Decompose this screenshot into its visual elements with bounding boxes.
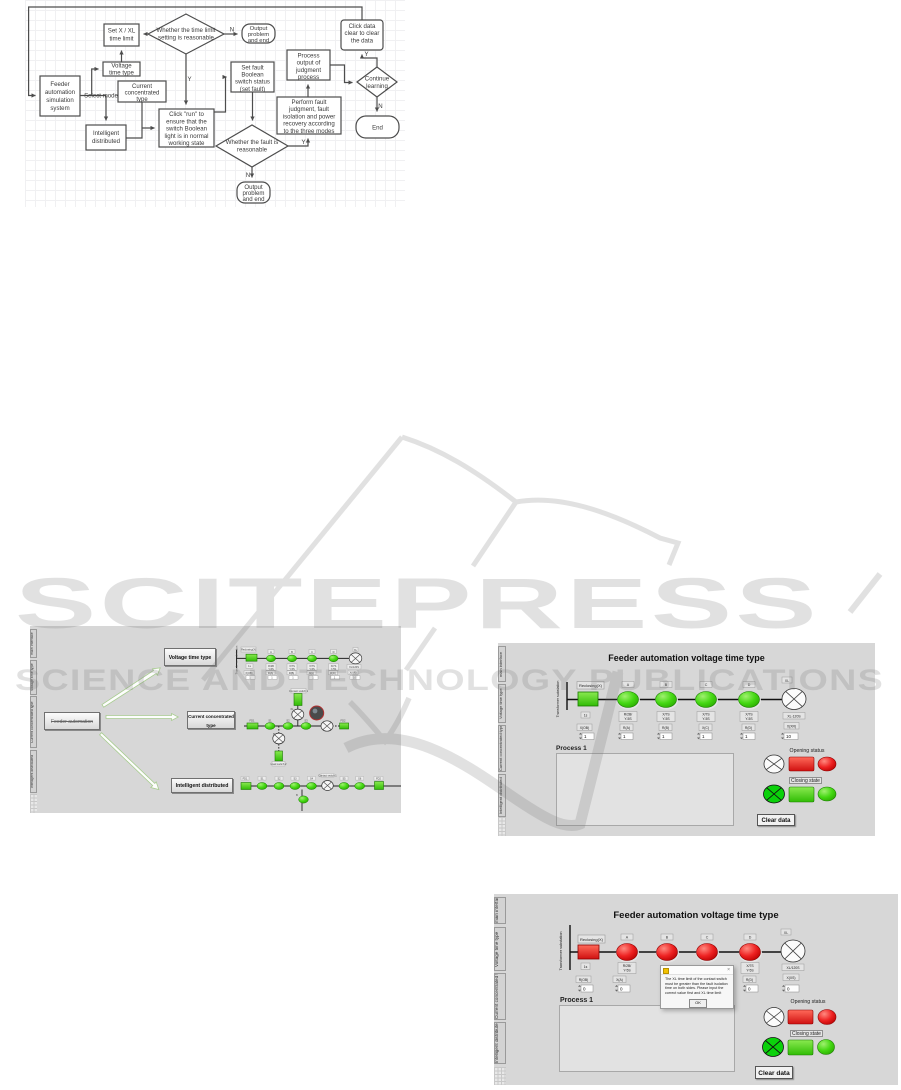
svg-text:Y-5S: Y-5S [623, 968, 631, 972]
svg-text:Whether the time limit: Whether the time limit [157, 27, 216, 34]
svg-text:R(OB): R(OB) [579, 978, 589, 982]
svg-text:Y: Y [364, 51, 368, 58]
svg-text:light is in normal: light is in normal [164, 133, 208, 140]
svg-text:Y: Y [187, 76, 191, 83]
svg-text:Boolean: Boolean [241, 72, 263, 79]
svg-text:system: system [50, 105, 69, 112]
svg-text:Y-5S: Y-5S [702, 717, 710, 721]
svg-text:simulation: simulation [46, 97, 73, 104]
svg-text:Y-5S: Y-5S [745, 717, 753, 721]
svg-text:X/7S: X/7S [662, 713, 670, 717]
svg-text:R/2B/: R/2B/ [623, 964, 632, 968]
svg-text:N: N [378, 103, 382, 110]
svg-text:R(A): R(A) [623, 726, 630, 730]
svg-text:X/7S: X/7S [746, 964, 754, 968]
svg-text:Y-5S: Y-5S [624, 717, 632, 721]
svg-text:Load switch 2: Load switch 2 [271, 762, 287, 766]
svg-text:Y-5S: Y-5S [289, 667, 295, 671]
svg-text:R(B): R(B) [662, 726, 669, 730]
svg-text:Y-5S: Y-5S [662, 717, 670, 721]
svg-text:Set fault: Set fault [241, 64, 264, 71]
svg-text:D: D [748, 683, 751, 687]
svg-text:N: N [230, 27, 234, 34]
svg-text:Perform fault: Perform fault [292, 99, 327, 106]
svg-text:R(D): R(D) [330, 671, 336, 675]
svg-text:clear to clear: clear to clear [345, 30, 380, 37]
svg-text:B: B [273, 732, 275, 736]
svg-text:Contact switch 1: Contact switch 1 [289, 689, 309, 693]
svg-text:X(C): X(C) [702, 726, 709, 730]
svg-text:Select mode: Select mode [84, 93, 118, 100]
svg-text:C: C [706, 936, 709, 940]
svg-text:X/7S: X/7S [702, 713, 710, 717]
svg-text:R/2B/: R/2B/ [624, 713, 633, 717]
svg-text:(set fault): (set fault) [240, 86, 265, 93]
svg-text:C: C [311, 650, 313, 654]
svg-text:reasonable: reasonable [237, 147, 268, 154]
svg-text:distributed: distributed [92, 138, 120, 145]
svg-text:recovery according: recovery according [283, 121, 334, 128]
svg-text:Click "run" to: Click "run" to [169, 111, 204, 118]
svg-text:D: D [749, 936, 752, 940]
svg-text:judgment, fault: judgment, fault [288, 106, 329, 113]
svg-text:Transformer substation: Transformer substation [556, 681, 560, 718]
svg-text:switch status: switch status [235, 79, 270, 86]
svg-text:and end: and end [248, 38, 269, 44]
svg-text:Y-5S: Y-5S [268, 667, 274, 671]
svg-text:Reclosing(X): Reclosing(X) [580, 937, 604, 942]
svg-text:1s: 1s [584, 714, 588, 718]
svg-text:XL: XL [784, 931, 788, 935]
svg-text:Voltage: Voltage [111, 63, 132, 70]
svg-text:Y-5S: Y-5S [309, 667, 315, 671]
svg-text:1s: 1s [584, 965, 588, 969]
svg-text:X(A): X(A) [616, 978, 623, 982]
svg-text:X(OB): X(OB) [245, 671, 252, 675]
svg-text:to the three modes: to the three modes [284, 128, 335, 135]
svg-text:S1: S1 [268, 719, 272, 723]
svg-text:Feeder: Feeder [50, 81, 69, 88]
svg-text:S2: S2 [286, 719, 290, 723]
svg-text:Process: Process [297, 53, 319, 60]
svg-text:XL-120S: XL-120S [787, 714, 801, 718]
svg-text:time limit: time limit [109, 36, 133, 43]
svg-text:automation: automation [45, 89, 75, 96]
svg-text:S3: S3 [304, 719, 308, 723]
svg-text:N: N [246, 172, 250, 179]
svg-text:the data: the data [351, 37, 374, 44]
svg-text:B: B [296, 794, 298, 797]
svg-text:working state: working state [168, 140, 206, 147]
svg-text:FD1: FD1 [250, 719, 255, 723]
svg-text:Transformer substation: Transformer substation [559, 932, 563, 971]
svg-text:R(D): R(D) [746, 978, 753, 982]
svg-text:XL: XL [785, 679, 789, 683]
svg-text:FD2: FD2 [376, 777, 381, 780]
svg-text:FD1: FD1 [243, 777, 248, 780]
svg-text:Y: Y [301, 139, 305, 146]
svg-text:judgment: judgment [295, 67, 321, 74]
svg-text:and end: and end [242, 196, 264, 203]
svg-text:C: C [705, 683, 708, 687]
svg-text:XL/120S: XL/120S [349, 665, 359, 669]
svg-text:Reclosing(X): Reclosing(X) [579, 683, 603, 688]
svg-text:10: 10 [786, 734, 792, 739]
svg-text:X/7S: X/7S [745, 713, 753, 717]
svg-text:time type: time type [109, 70, 134, 77]
svg-text:ensure that the: ensure that the [166, 118, 207, 125]
svg-text:XL: XL [354, 648, 358, 652]
svg-text:Whether the fault is: Whether the fault is [226, 139, 279, 146]
svg-text:Intelligent: Intelligent [93, 130, 119, 137]
svg-text:R(B): R(B) [289, 671, 294, 675]
svg-text:B: B [291, 650, 293, 654]
svg-text:switch Boolean: switch Boolean [166, 126, 207, 133]
svg-text:Y-5S: Y-5S [746, 968, 754, 972]
svg-text:End: End [372, 125, 383, 132]
svg-text:R(A): R(A) [268, 671, 273, 675]
svg-text:process: process [298, 74, 319, 81]
svg-text:type: type [136, 97, 148, 103]
svg-text:X(XR): X(XR) [787, 724, 796, 728]
svg-text:X(C): X(C) [309, 671, 314, 675]
svg-text:Transformer substation: Transformer substation [235, 645, 239, 674]
svg-text:isolation and power: isolation and power [283, 113, 336, 120]
svg-text:R(D): R(D) [745, 726, 752, 730]
svg-text:X(XS): X(XS) [786, 976, 795, 980]
svg-text:Set X / XL: Set X / XL [108, 28, 136, 35]
svg-text:Click data: Click data [349, 23, 376, 30]
svg-text:X(XR): X(XR) [349, 671, 356, 675]
svg-text:learning: learning [366, 83, 388, 90]
svg-text:A: A [270, 650, 272, 654]
svg-text:FD2: FD2 [341, 719, 346, 723]
svg-text:XL: XL [290, 707, 294, 711]
svg-text:X(OB): X(OB) [580, 726, 589, 730]
svg-text:Continue: Continue [365, 76, 390, 83]
svg-text:Contact switch 1: Contact switch 1 [318, 774, 337, 777]
svg-text:XL/120S: XL/120S [786, 966, 800, 970]
svg-text:concentrated: concentrated [125, 91, 160, 97]
svg-text:Current: Current [132, 84, 152, 90]
svg-text:Y-5S: Y-5S [331, 667, 337, 671]
svg-text:D: D [333, 650, 335, 654]
svg-text:setting is reasonable: setting is reasonable [158, 35, 215, 42]
svg-text:output of: output of [297, 60, 321, 67]
svg-text:Reclosing(X): Reclosing(X) [241, 648, 256, 652]
